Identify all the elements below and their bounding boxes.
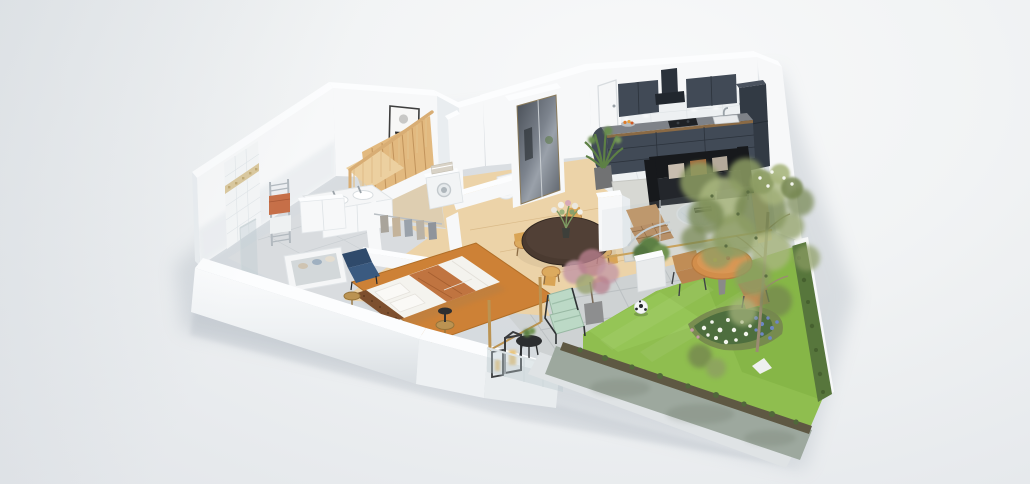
floorplan-svg — [0, 0, 1030, 484]
floorplan-render — [0, 0, 1030, 484]
mirror-reflection-plant — [545, 136, 553, 144]
sink-basin — [353, 191, 373, 200]
tree-pot — [584, 301, 604, 325]
plant-pot — [594, 165, 613, 190]
door-handle — [613, 105, 616, 108]
rolled-towel — [298, 263, 308, 269]
white-towel — [270, 215, 291, 234]
burner — [677, 122, 680, 125]
vase — [562, 228, 570, 238]
mirrored-wardrobe — [517, 95, 560, 204]
orange-towel — [269, 193, 290, 215]
sink — [713, 115, 739, 124]
rolled-towel — [325, 256, 335, 262]
hood-chimney — [661, 68, 678, 96]
rolled-towel — [312, 259, 322, 265]
art-grey-circle — [399, 114, 408, 123]
jog-wall-face — [459, 101, 485, 170]
burner — [687, 120, 690, 123]
bedroom-wardrobe — [298, 194, 346, 233]
soccer-ball — [634, 300, 648, 316]
mirror-reflection-clothes — [524, 127, 533, 161]
